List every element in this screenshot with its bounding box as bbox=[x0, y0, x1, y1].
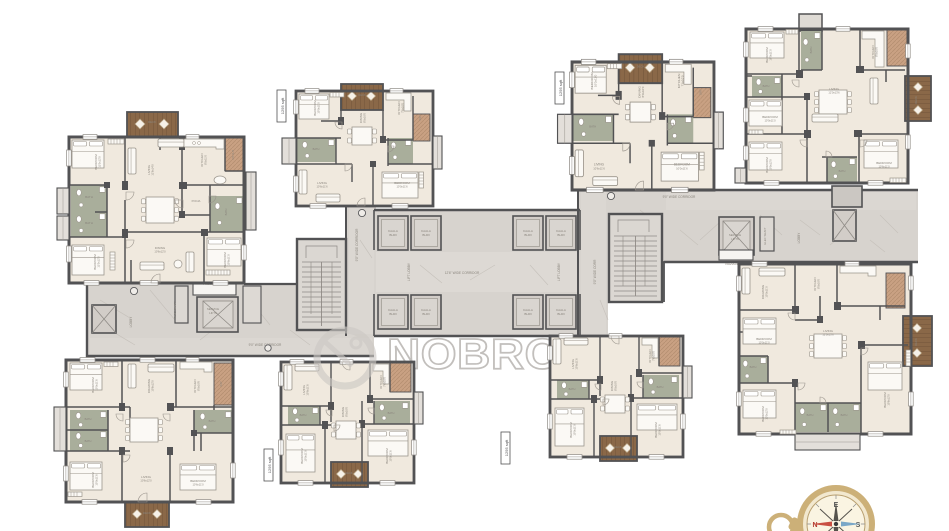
svg-text:10'6x11'6: 10'6x11'6 bbox=[306, 384, 310, 396]
svg-text:LIFTS: LIFTS bbox=[209, 311, 217, 315]
svg-text:DINING: DINING bbox=[610, 380, 614, 391]
svg-text:10'0x11'0: 10'0x11'0 bbox=[317, 102, 321, 114]
svg-text:11'0x12'0: 11'0x12'0 bbox=[97, 256, 101, 268]
svg-text:10'0x11'6: 10'0x11'6 bbox=[95, 379, 99, 391]
svg-text:10'0x11'0: 10'0x11'0 bbox=[769, 49, 773, 61]
svg-text:10'6x11'0: 10'6x11'0 bbox=[878, 165, 890, 169]
svg-text:KITCHEN: KITCHEN bbox=[397, 101, 401, 114]
svg-text:BEDROOM: BEDROOM bbox=[94, 154, 98, 170]
svg-text:LIVING: LIVING bbox=[302, 384, 306, 395]
svg-text:BEDROOM: BEDROOM bbox=[394, 181, 410, 185]
svg-text:10'0x11'0: 10'0x11'0 bbox=[765, 286, 769, 298]
svg-text:DECK: DECK bbox=[637, 64, 645, 68]
svg-text:DRY: DRY bbox=[220, 381, 223, 387]
svg-text:BEDROOM: BEDROOM bbox=[876, 161, 892, 165]
svg-text:12'0x13'6: 12'0x13'6 bbox=[822, 333, 834, 337]
svg-text:DECK: DECK bbox=[143, 511, 151, 515]
svg-text:BATH: BATH bbox=[809, 47, 813, 54]
svg-text:DRY: DRY bbox=[699, 89, 703, 95]
svg-text:BATH: BATH bbox=[807, 413, 814, 417]
svg-text:LIFTS: LIFTS bbox=[731, 237, 739, 241]
svg-text:9'0" WIDE CORR: 9'0" WIDE CORR bbox=[593, 259, 597, 284]
svg-text:BEDROOM: BEDROOM bbox=[91, 472, 95, 488]
svg-text:1295 sqft: 1295 sqft bbox=[267, 456, 272, 473]
svg-text:BATH: BATH bbox=[763, 84, 770, 88]
svg-text:8'0x10'6: 8'0x10'6 bbox=[197, 381, 201, 391]
svg-text:12'6" WIDE CORRIDOR: 12'6" WIDE CORRIDOR bbox=[445, 271, 480, 275]
svg-text:BATH: BATH bbox=[388, 411, 395, 415]
svg-text:10'6x12'0: 10'6x12'0 bbox=[154, 250, 166, 254]
svg-text:KITCHEN: KITCHEN bbox=[379, 375, 383, 388]
svg-text:10'0x12'0: 10'0x12'0 bbox=[765, 408, 769, 420]
svg-text:KITCHEN: KITCHEN bbox=[813, 277, 817, 290]
svg-text:BEDROOM: BEDROOM bbox=[313, 100, 317, 116]
svg-text:POOJA: POOJA bbox=[192, 199, 201, 203]
svg-text:BATH: BATH bbox=[313, 147, 320, 151]
svg-text:BATH: BATH bbox=[657, 385, 664, 389]
svg-text:DECK: DECK bbox=[358, 93, 365, 97]
svg-text:10'6x11'0: 10'6x11'0 bbox=[227, 254, 231, 266]
svg-text:7'6x10'0: 7'6x10'0 bbox=[681, 75, 685, 86]
svg-text:7'6x10'0: 7'6x10'0 bbox=[383, 377, 387, 387]
svg-text:10'0x11'6: 10'0x11'6 bbox=[389, 450, 393, 462]
svg-text:BEDROOM: BEDROOM bbox=[300, 448, 304, 464]
svg-text:1295 sqft: 1295 sqft bbox=[280, 97, 285, 114]
svg-text:10'6x12'0: 10'6x12'0 bbox=[887, 394, 891, 406]
svg-text:BATH: BATH bbox=[85, 221, 93, 225]
svg-text:BATH: BATH bbox=[85, 417, 92, 421]
svg-text:12'0x13'6: 12'0x13'6 bbox=[828, 91, 840, 95]
svg-text:10'6x11'6: 10'6x11'6 bbox=[575, 358, 579, 370]
svg-text:BEDROOM: BEDROOM bbox=[761, 406, 765, 422]
svg-text:DRY: DRY bbox=[419, 115, 422, 121]
svg-text:BEDROOM: BEDROOM bbox=[654, 422, 658, 438]
svg-text:10'0x11'6: 10'0x11'6 bbox=[95, 474, 99, 486]
svg-text:LIVING: LIVING bbox=[317, 181, 328, 185]
svg-text:12'6x14'0: 12'6x14'0 bbox=[151, 164, 155, 176]
svg-text:KITCHEN: KITCHEN bbox=[648, 349, 652, 362]
svg-text:BATH: BATH bbox=[209, 419, 216, 423]
svg-text:BATH: BATH bbox=[85, 195, 93, 199]
svg-text:BEDROOM: BEDROOM bbox=[569, 422, 573, 438]
svg-text:BATH: BATH bbox=[750, 365, 757, 369]
svg-text:BEDROOM: BEDROOM bbox=[756, 337, 772, 341]
svg-text:BATH: BATH bbox=[300, 413, 307, 417]
svg-text:ELEC SHAFT: ELEC SHAFT bbox=[173, 301, 177, 319]
svg-text:10'0x11'0: 10'0x11'0 bbox=[573, 424, 577, 436]
svg-text:8'0x10'0: 8'0x10'0 bbox=[363, 113, 367, 123]
svg-text:LIVING: LIVING bbox=[141, 475, 152, 479]
svg-text:DECK: DECK bbox=[345, 471, 352, 475]
svg-text:1295 sqft: 1295 sqft bbox=[558, 79, 563, 96]
svg-text:8'0x10'0: 8'0x10'0 bbox=[345, 407, 349, 417]
svg-text:DECK: DECK bbox=[148, 120, 156, 124]
svg-text:LOBBY: LOBBY bbox=[129, 316, 133, 328]
svg-text:1295 sqft: 1295 sqft bbox=[504, 439, 509, 456]
svg-text:10'0x11'0: 10'0x11'0 bbox=[304, 450, 308, 462]
svg-text:8'0x10'0: 8'0x10'0 bbox=[875, 47, 879, 57]
svg-text:LOBBY: LOBBY bbox=[797, 232, 801, 244]
svg-text:DINING: DINING bbox=[155, 246, 166, 250]
svg-text:10'6x11'0: 10'6x11'0 bbox=[192, 483, 204, 487]
svg-text:DECK: DECK bbox=[614, 445, 621, 449]
svg-text:10'0x11'6: 10'0x11'6 bbox=[676, 166, 688, 170]
svg-text:BEDROOM: BEDROOM bbox=[91, 377, 95, 393]
svg-text:10'0x11'6: 10'0x11'6 bbox=[396, 185, 408, 189]
svg-text:10'6x12'0: 10'6x12'0 bbox=[140, 479, 152, 483]
svg-text:LIVING: LIVING bbox=[571, 358, 575, 369]
svg-text:10'6x11'6: 10'6x11'6 bbox=[593, 166, 605, 170]
svg-text:BATH: BATH bbox=[569, 387, 576, 391]
svg-text:BEDROOM: BEDROOM bbox=[385, 448, 389, 464]
svg-text:10'0x11'0: 10'0x11'0 bbox=[764, 119, 776, 123]
svg-text:LIVING: LIVING bbox=[829, 87, 840, 91]
svg-text:BEDROOM: BEDROOM bbox=[883, 392, 887, 408]
svg-text:LIVING: LIVING bbox=[823, 329, 834, 333]
svg-text:BEDROOM: BEDROOM bbox=[190, 479, 206, 483]
svg-text:DRAWING: DRAWING bbox=[147, 378, 151, 393]
svg-text:BATH: BATH bbox=[841, 413, 848, 417]
svg-text:BEDROOM: BEDROOM bbox=[223, 252, 227, 268]
svg-text:BEDROOM: BEDROOM bbox=[93, 254, 97, 270]
svg-text:S: S bbox=[856, 522, 861, 529]
svg-text:9'0" WIDE CORRIDOR: 9'0" WIDE CORRIDOR bbox=[355, 228, 359, 261]
svg-text:DINING: DINING bbox=[341, 406, 345, 417]
svg-text:10'0x12'0: 10'0x12'0 bbox=[769, 159, 773, 171]
svg-text:10'0x11'0: 10'0x11'0 bbox=[594, 74, 598, 87]
svg-text:7'6x10'0: 7'6x10'0 bbox=[652, 351, 656, 361]
svg-text:BEDROOM: BEDROOM bbox=[765, 157, 769, 173]
svg-text:DRAWING: DRAWING bbox=[761, 284, 765, 299]
svg-text:BATH: BATH bbox=[85, 439, 92, 443]
svg-text:10'0x11'0: 10'0x11'0 bbox=[758, 341, 770, 345]
svg-text:LIFT LOBBY: LIFT LOBBY bbox=[407, 262, 411, 281]
svg-text:KITCHEN: KITCHEN bbox=[871, 45, 875, 58]
svg-text:7'6x10'0: 7'6x10'0 bbox=[401, 103, 405, 113]
svg-text:KITCHEN: KITCHEN bbox=[193, 379, 197, 392]
svg-text:N: N bbox=[812, 522, 817, 529]
svg-text:11'0x12'0: 11'0x12'0 bbox=[98, 156, 102, 168]
svg-text:BATH: BATH bbox=[224, 209, 228, 216]
svg-text:DINING: DINING bbox=[359, 112, 363, 123]
svg-text:9'0" WIDE CORRIDOR: 9'0" WIDE CORRIDOR bbox=[663, 195, 696, 199]
svg-text:8'0x10'0: 8'0x10'0 bbox=[641, 86, 645, 97]
svg-text:10'6x12'0: 10'6x12'0 bbox=[151, 380, 155, 392]
svg-text:BEDROOM: BEDROOM bbox=[765, 47, 769, 63]
svg-text:BATH: BATH bbox=[839, 169, 846, 173]
svg-text:DECK: DECK bbox=[914, 338, 918, 346]
svg-text:10'6x11'6: 10'6x11'6 bbox=[316, 185, 328, 189]
svg-text:ELEC SHAFT: ELEC SHAFT bbox=[763, 227, 767, 245]
svg-text:BATH: BATH bbox=[589, 125, 596, 129]
svg-text:8'0x10'0: 8'0x10'0 bbox=[817, 279, 821, 289]
svg-text:SIT OUT: SIT OUT bbox=[232, 150, 235, 160]
svg-text:LIFT LOBBY: LIFT LOBBY bbox=[557, 262, 561, 281]
svg-text:8'0x10'0: 8'0x10'0 bbox=[614, 381, 618, 391]
svg-text:DECK: DECK bbox=[914, 96, 918, 104]
svg-text:10'0x11'6: 10'0x11'6 bbox=[658, 424, 662, 436]
svg-text:BEDROOM: BEDROOM bbox=[762, 115, 778, 119]
svg-text:KITCHEN: KITCHEN bbox=[200, 153, 204, 166]
svg-text:LIVING: LIVING bbox=[147, 164, 151, 175]
svg-text:8'0x11'0: 8'0x11'0 bbox=[204, 155, 208, 165]
